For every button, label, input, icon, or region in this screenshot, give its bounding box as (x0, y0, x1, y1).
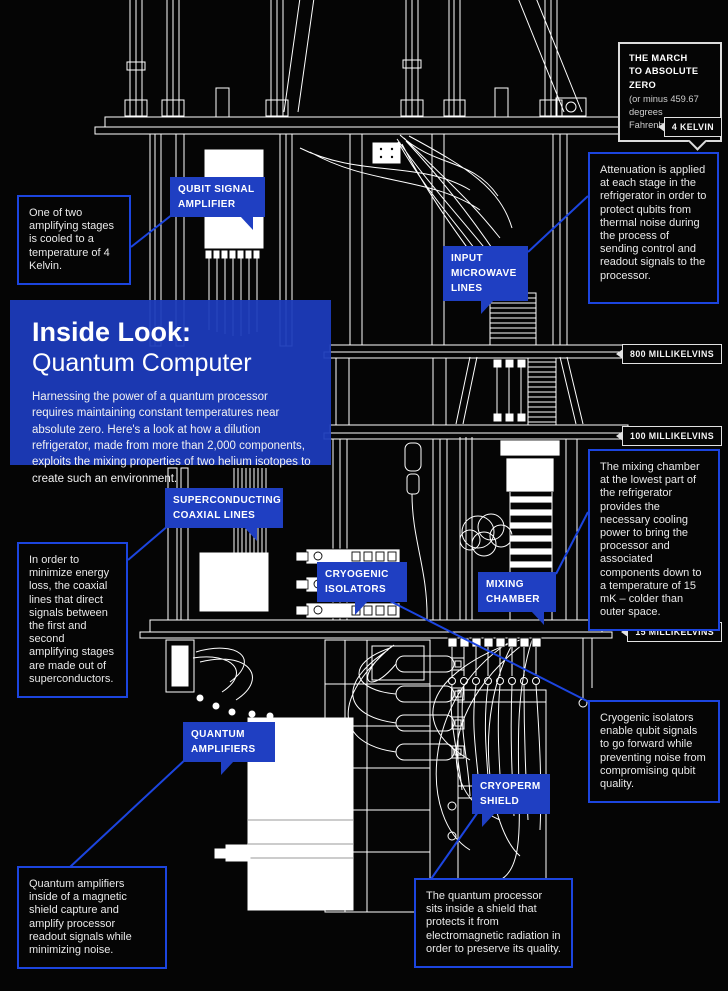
callout-attenuation: Attenuation is applied at each stage in … (588, 152, 719, 304)
label-cryogenic-isolators: CRYOGENIC ISOLATORS (317, 562, 407, 602)
callout-mixing-chamber: The mixing chamber at the lowest part of… (588, 449, 720, 631)
temp-tag-4-kelvin: 4 KELVIN (664, 117, 722, 137)
label-superconducting-coaxial-lines: SUPERCONDUCTING COAXIAL LINES (165, 488, 283, 528)
infographic-canvas: Inside Look: Quantum Computer Harnessing… (0, 0, 728, 991)
callout-quantum-amplifiers: Quantum amplifiers inside of a magnetic … (17, 866, 167, 969)
page-subtitle: Quantum Computer (32, 348, 311, 378)
callout-processor-shield: The quantum processor sits inside a shie… (414, 878, 573, 968)
callout-amplifying-stage: One of two amplifying stages is cooled t… (17, 195, 131, 285)
intro-paragraph: Harnessing the power of a quantum proces… (32, 389, 311, 487)
callout-superconductors: In order to minimize energy loss, the co… (17, 542, 128, 698)
callout-cryogenic-isolators: Cryogenic isolators enable qubit signals… (588, 700, 720, 803)
label-qubit-signal-amplifier: QUBIT SIGNAL AMPLIFIER (170, 177, 265, 217)
label-mixing-chamber: MIXING CHAMBER (478, 572, 556, 612)
title-panel: Inside Look: Quantum Computer Harnessing… (10, 300, 331, 465)
label-quantum-amplifiers: QUANTUM AMPLIFIERS (183, 722, 275, 762)
temp-tag-800-millikelvins: 800 MILLIKELVINS (622, 344, 722, 364)
page-title: Inside Look: (32, 317, 311, 348)
label-input-microwave-lines: INPUT MICROWAVE LINES (443, 246, 528, 301)
march-note-title: THE MARCH TO ABSOLUTE ZERO (629, 52, 711, 92)
label-cryoperm-shield: CRYOPERM SHIELD (472, 774, 550, 814)
temp-tag-100-millikelvins: 100 MILLIKELVINS (622, 426, 722, 446)
